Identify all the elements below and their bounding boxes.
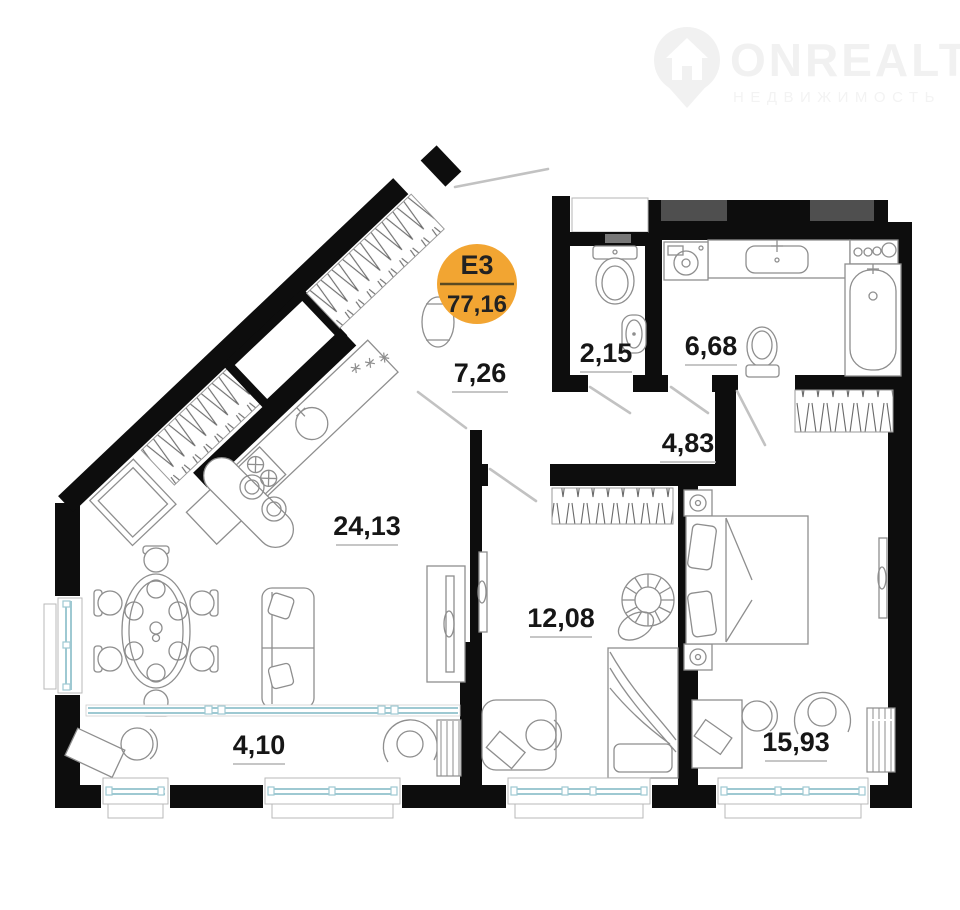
pillow	[687, 591, 717, 638]
nightstand	[684, 644, 712, 670]
bathtub-icon	[845, 264, 901, 376]
pillow	[687, 524, 717, 571]
room-label-wc: 2,15	[580, 338, 633, 368]
single-bed	[608, 648, 678, 778]
location-pin-house-icon	[654, 27, 720, 108]
unit-badge: Е3 77,16	[437, 244, 517, 324]
wc-door	[590, 387, 630, 413]
room-door	[490, 469, 536, 501]
bedroom-door	[737, 391, 765, 445]
balcony-window-1	[101, 778, 170, 818]
radiator-icon	[437, 720, 461, 776]
room-label-kitchen-living: 24,13	[333, 511, 401, 541]
balcony-window-2	[263, 778, 402, 818]
logo-brand-text: ONREALT	[730, 34, 960, 86]
room-label-room: 12,08	[527, 603, 595, 633]
room-label-hallway: 7,26	[454, 358, 507, 388]
balcony-chair	[121, 728, 157, 760]
room-label-bathroom: 6,68	[685, 331, 738, 361]
desk	[692, 700, 742, 768]
hanging-chair	[614, 574, 674, 646]
logo-subtitle-text: НЕДВИЖИМОСТЬ	[733, 89, 941, 106]
tv-stand	[427, 566, 465, 682]
floor-plan: ONREALT НЕДВИЖИМОСТЬ	[0, 0, 960, 910]
washing-machine-icon	[664, 242, 708, 280]
dining-table	[94, 546, 218, 716]
living-side-window	[44, 596, 82, 695]
room-label-bedroom: 15,93	[762, 727, 830, 757]
radiator-icon	[867, 708, 895, 772]
unit-total-area: 77,16	[447, 291, 507, 318]
ventilation-shaft	[810, 200, 874, 221]
wc-fixtures	[593, 246, 646, 353]
entrance-door	[455, 169, 548, 187]
brand-logo: ONREALT НЕДВИЖИМОСТЬ	[654, 27, 960, 108]
ventilation-shaft	[661, 200, 727, 221]
sofa	[262, 588, 314, 708]
toilet-icon	[746, 327, 779, 377]
balcony-partition-window	[86, 705, 460, 716]
room-window	[506, 778, 652, 818]
toilet-icon	[593, 246, 637, 304]
nightstand	[684, 490, 712, 516]
room-furniture	[478, 488, 678, 778]
bedroom-window	[716, 778, 870, 818]
double-bed	[686, 516, 808, 644]
living-door	[418, 392, 466, 428]
unit-number: Е3	[460, 250, 493, 280]
room-label-inner-hall: 4,83	[662, 428, 715, 458]
bathroom-door	[671, 387, 708, 413]
tv-icon	[446, 576, 454, 672]
wardrobe	[795, 390, 893, 432]
room-label-balcony: 4,10	[233, 730, 286, 760]
living-furniture	[94, 546, 465, 716]
desk	[482, 700, 556, 770]
bath-shelf	[850, 240, 898, 264]
floor-plan-page: ONREALT НЕДВИЖИМОСТЬ	[0, 0, 960, 910]
wardrobe	[552, 488, 673, 524]
armchair	[383, 720, 437, 762]
